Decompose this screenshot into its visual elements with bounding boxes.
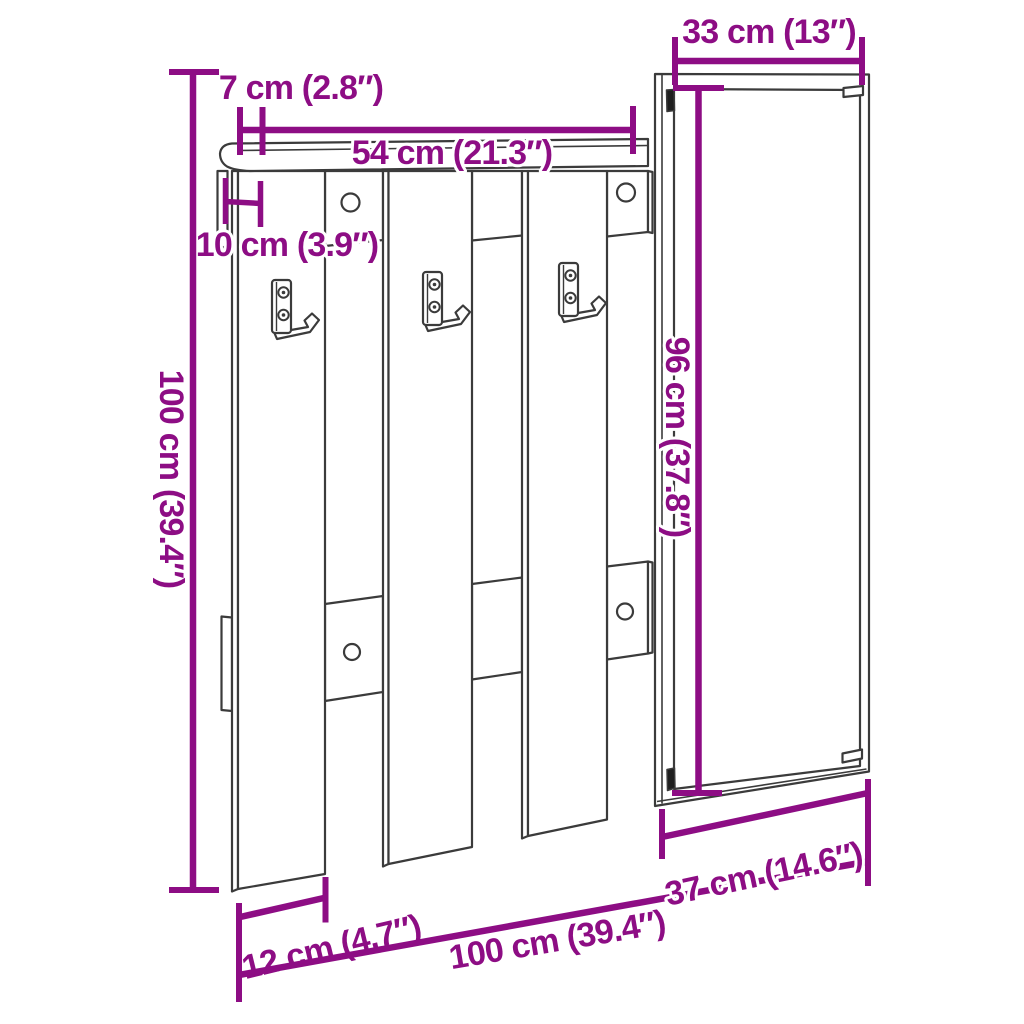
dim-overall-height-label: 100 cm (39.4″)	[152, 370, 190, 589]
door-handle-bottom	[667, 768, 675, 791]
dim-overall-height: 100 cm (39.4″)	[152, 72, 219, 890]
dim-mirror-width-label: 33 cm (13″)	[682, 13, 856, 51]
dim-overall-width-label: 100 cm (39.4″)	[446, 903, 668, 977]
dim-mirror-height-label: 96 cm (37.8″)	[658, 337, 696, 538]
dim-unit-depth-label: 10 cm (3.9″)	[196, 226, 378, 264]
dimension-diagram: 33 cm (13″) 7 cm (2.8″) 54 cm (21.3″) 10…	[0, 0, 1024, 1024]
diagram-canvas: 33 cm (13″) 7 cm (2.8″) 54 cm (21.3″) 10…	[0, 0, 1024, 1024]
door-hinge-top	[844, 86, 864, 97]
door-handle-top	[667, 90, 675, 112]
dim-mirror-panel-width-label: 37 cm (14.6″)	[662, 835, 866, 914]
dim-rack-width-label: 54 cm (21.3″)	[352, 134, 553, 172]
dim-shelf-depth-label: 7 cm (2.8″)	[219, 69, 383, 107]
